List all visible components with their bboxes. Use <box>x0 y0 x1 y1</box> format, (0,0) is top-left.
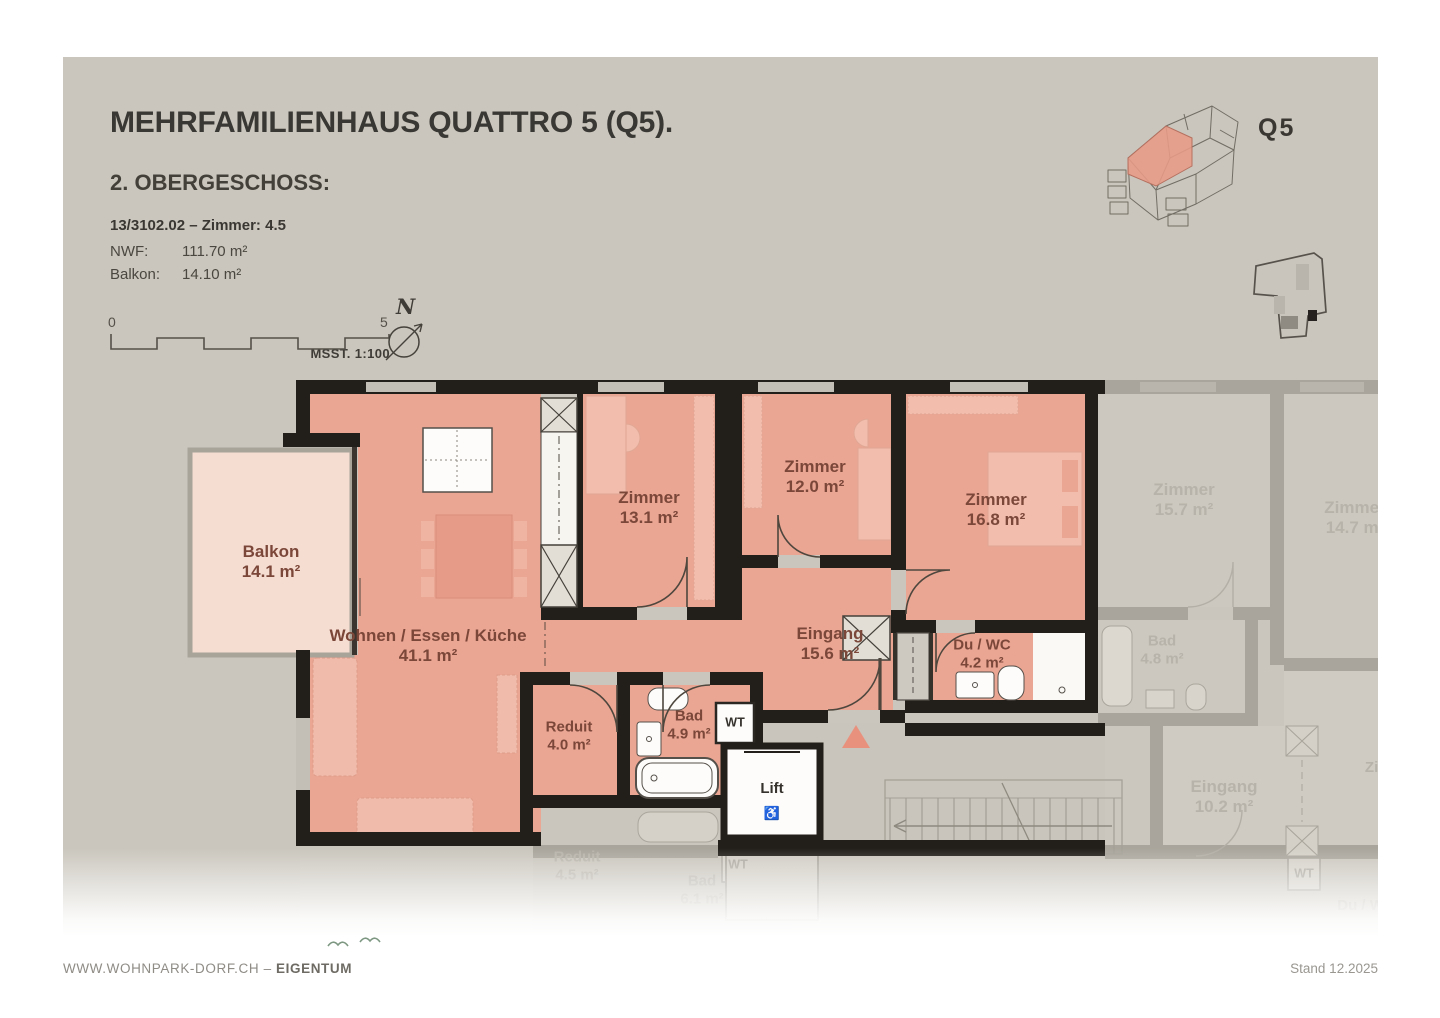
room-label-balkon: Balkon14.1 m² <box>242 542 301 582</box>
room-label-bad: Bad4.9 m² <box>667 707 710 742</box>
footer-ownership-label: EIGENTUM <box>276 961 352 976</box>
faded-room-label-zimmer-clipped: Zimmer <box>1365 759 1419 777</box>
room-label-zimmer-16: Zimmer16.8 m² <box>965 490 1026 530</box>
faded-washing-tower-label: WT <box>728 858 747 873</box>
scale-bar-icon <box>108 330 392 352</box>
building-3d-icon <box>1100 86 1250 246</box>
faded-room-label-duwc-clipped: Du / WC <box>1337 897 1395 915</box>
site-plan-icon <box>1248 250 1338 342</box>
floor-plan-sheet: MEHRFAMILIENHAUS QUATTRO 5 (Q5). 2. OBER… <box>0 0 1440 1018</box>
faded-room-label-zimmer-157: Zimmer15.7 m² <box>1153 480 1214 520</box>
lift-label: Lift <box>760 780 783 798</box>
wheelchair-icon: ♿ <box>764 805 780 820</box>
faded-room-label-bad-61: Bad6.1 m² <box>680 872 723 907</box>
room-label-eingang: Eingang15.6 m² <box>796 624 863 664</box>
washing-tower-label: WT <box>725 716 744 731</box>
north-compass-icon <box>376 312 432 368</box>
footer-website: WWW.WOHNPARK-DORF.CH – EIGENTUM <box>63 961 352 976</box>
footer-url: WWW.WOHNPARK-DORF.CH – <box>63 961 276 976</box>
faded-room-label-zimmer-147: Zimmer14.7 m² <box>1324 498 1385 538</box>
room-label-reduit: Reduit4.0 m² <box>546 718 593 753</box>
room-label-wohnen: Wohnen / Essen / Küche41.1 m² <box>329 626 526 666</box>
faded-room-label-eingang-102: Eingang10.2 m² <box>1190 777 1257 817</box>
room-label-duwc: Du / WC4.2 m² <box>953 636 1011 671</box>
footer-date: Stand 12.2025 <box>1290 961 1378 976</box>
birds-icon <box>322 930 392 960</box>
faded-room-label-reduit-45: Reduit4.5 m² <box>554 848 601 883</box>
room-label-zimmer-13: Zimmer13.1 m² <box>618 488 679 528</box>
faded-washing-tower-label-2: WT <box>1294 867 1313 882</box>
faded-room-label-bad-48: Bad4.8 m² <box>1140 632 1183 667</box>
room-label-zimmer-12: Zimmer12.0 m² <box>784 457 845 497</box>
